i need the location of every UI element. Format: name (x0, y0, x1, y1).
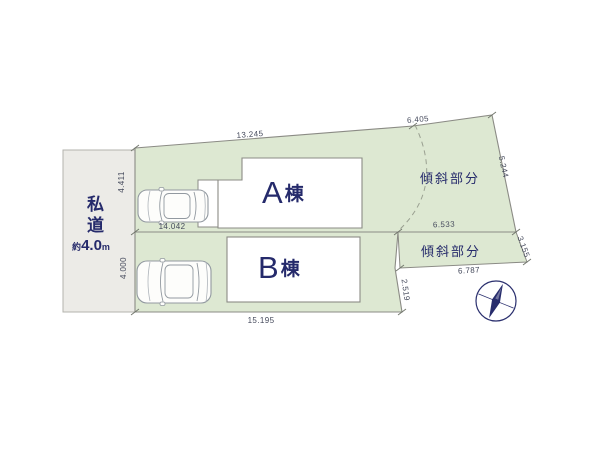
building-b-label: B 棟 (258, 252, 300, 283)
road-width-value: 4.0 (81, 237, 102, 254)
road-width-label: 約4.0m (62, 235, 120, 256)
building-b-suffix: 棟 (281, 260, 300, 279)
car-icon (138, 188, 208, 225)
building-a-letter: A (262, 177, 283, 208)
dimension-bottom: 15.195 (237, 317, 285, 325)
slope-area-label-upper: 傾斜部分 (420, 172, 480, 185)
compass-icon (471, 277, 520, 326)
dimension-parcel-divider: 14.042 (147, 223, 197, 231)
road-width-prefix: 約 (72, 242, 81, 252)
dimension-parcel-a-left: 4.411 (118, 162, 126, 202)
car-icon (137, 259, 211, 306)
slope-area-label-lower: 傾斜部分 (421, 245, 481, 258)
building-a-suffix: 棟 (285, 185, 304, 204)
dimension-parcel-b-left: 4.000 (120, 248, 128, 288)
site-plan-diagram: 私道 約4.0m A 棟 B 棟 傾斜部分 傾斜部分 13.245 6.405 … (0, 0, 600, 449)
road-label: 私道 (76, 194, 102, 238)
building-a-label: A 棟 (262, 177, 304, 208)
dimension-slope-strip-top: 6.533 (424, 220, 464, 229)
building-b-letter: B (258, 252, 279, 283)
road-width-unit: m (102, 242, 110, 252)
